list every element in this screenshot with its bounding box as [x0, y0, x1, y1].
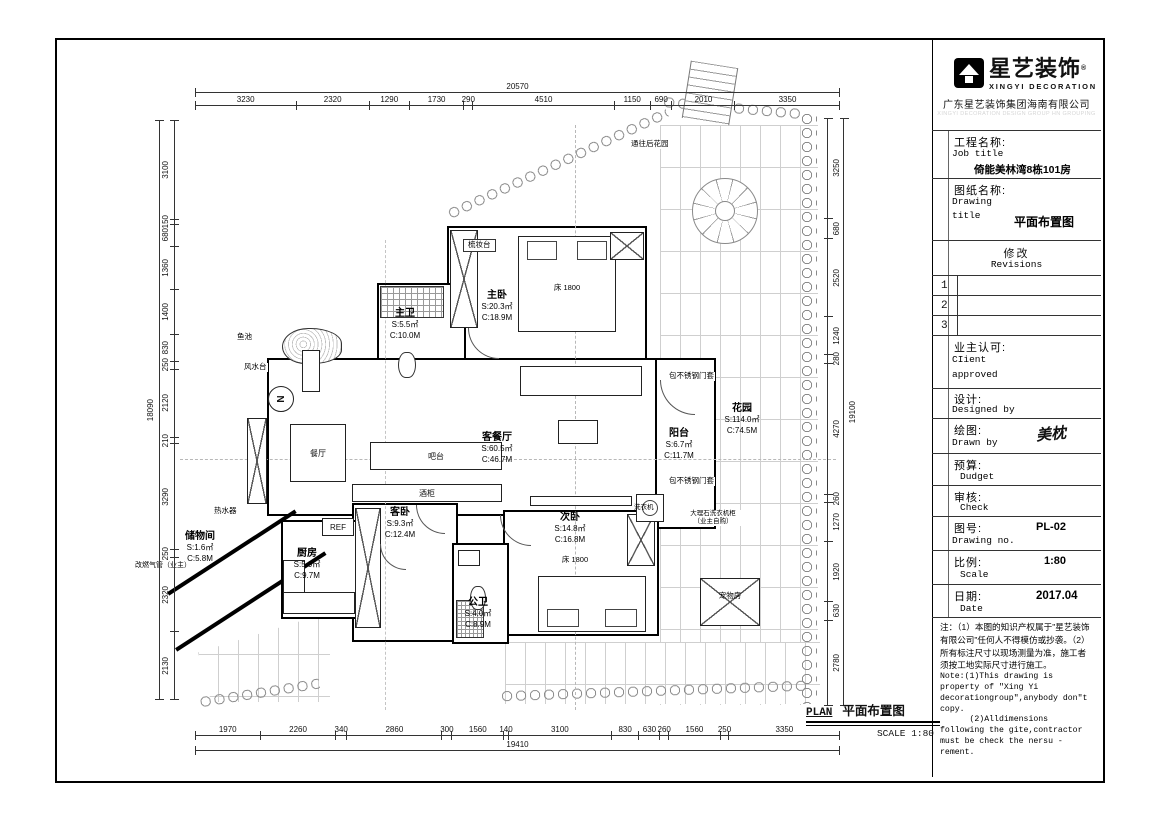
marble-cabinet-line2: （业主自购） — [694, 518, 733, 525]
fish-pond-label: 鱼池 — [236, 333, 253, 342]
dim-segment: 1270 — [828, 503, 841, 542]
plan-footer: PLAN 平面布置图 SCALE 1:80 — [806, 700, 940, 739]
revision-row: 3 — [932, 315, 1101, 335]
bed-master-label: 床 1800 — [520, 284, 614, 293]
client-label-en1: CIient — [952, 354, 986, 365]
job-label-en: Job title — [952, 148, 1003, 159]
date-label-en: Date — [960, 603, 983, 614]
back-garden-label: 通往后花园 — [630, 140, 670, 149]
tv-console — [530, 496, 632, 506]
notes-text: 注：（1）本图的知识产权属于"星艺装饰有限公司"任何人不得模仿或抄袭。（2）所有… — [940, 621, 1092, 759]
check-label-en: Check — [960, 502, 989, 513]
marble-cabinet-line1: 大理石洗衣机柜 — [690, 510, 736, 517]
dim-segment: 2120 — [161, 369, 174, 437]
dim-segment: 690 — [650, 92, 672, 105]
notes-cn: 注：（1）本图的知识产权属于"星艺装饰有限公司"任何人不得模仿或抄袭。（2）所有… — [940, 622, 1090, 670]
dim-segment: 2130 — [161, 632, 174, 700]
north-letter: N — [276, 395, 287, 402]
designed-label-en: Designed by — [952, 404, 1015, 415]
dim-right-overall: 19100 — [843, 118, 857, 706]
ornamental-plant-icon — [692, 178, 758, 244]
dim-segment: 3250 — [828, 118, 841, 218]
revision-row: 2 — [932, 295, 1101, 315]
kitchen-counter-2 — [283, 592, 355, 614]
dim-segment: 630 — [828, 601, 841, 620]
dim-segment: 300 — [442, 722, 452, 735]
bed-second-label: 床 1800 — [528, 556, 622, 565]
scale-value: 1:80 — [1044, 555, 1066, 567]
dim-segment: 4270 — [828, 363, 841, 494]
label-living-dining: 客餐厅 S:60.5㎡ C:46.7M — [452, 432, 542, 465]
dim-segment: 1970 — [195, 722, 260, 735]
drawn-label-cn: 绘图: — [954, 422, 982, 438]
revisions-table: 1 2 3 — [932, 275, 1101, 335]
dim-value: 18090 — [146, 399, 155, 421]
tb-drawing-title-section: 图纸名称: Drawing title 平面布置图 — [932, 178, 1101, 240]
bar-label: 吧台 — [428, 451, 444, 462]
dim-segment: 1240 — [828, 317, 841, 355]
client-label-en2: approved — [952, 369, 998, 380]
hall-cabinet — [247, 418, 267, 504]
pet-house — [700, 578, 760, 626]
toilet-master-bath — [398, 352, 416, 378]
wine-cabinet: 酒柜 — [352, 484, 502, 502]
tb-drawing-no-section: 图号: PL-02 Drawing no. — [932, 516, 1101, 550]
company-watermark: XINGYI DECORATION DESIGN GROUP HN GROUPI… — [932, 111, 1101, 117]
tb-budget-section: 预算: Dudget — [932, 453, 1101, 485]
wine-label: 酒柜 — [419, 488, 435, 499]
dim-segment: 3290 — [161, 444, 174, 549]
label-guest-bedroom: 客卧 S:9.3㎡ C:12.4M — [355, 507, 445, 540]
dim-segment: 3230 — [195, 92, 296, 105]
xingyi-house-logo-icon — [954, 58, 984, 88]
tb-date-section: 日期: 2017.04 Date — [932, 584, 1101, 617]
tb-job-section: 工程名称: Job title 倚能美林湾8栋101房 — [932, 130, 1101, 178]
ref-label: REF — [330, 523, 346, 532]
revision-cell — [958, 316, 1101, 335]
door-frame-label-bottom: 包不锈钢门套 — [668, 477, 715, 486]
dim-left-overall: 18090 — [146, 120, 160, 700]
drawing-title-label-en1: Drawing — [952, 196, 992, 207]
tb-logo-section: 星艺装饰® XINGYI DECORATION 广东星艺装饰集团海南有限公司 X… — [932, 38, 1101, 130]
sink-public-bath — [458, 550, 480, 566]
dim-top-segments: 32302320129017302904510115069020103350 — [195, 92, 840, 106]
revision-number: 3 — [932, 316, 958, 335]
label-public-bath: 公卫 S:4.0㎡ C:8.9M — [433, 597, 523, 630]
dim-segment: 1360 — [161, 246, 174, 290]
plan-title: 平面布置图 — [842, 700, 905, 719]
cabinet-master-corner — [610, 232, 644, 260]
dim-segment: 1290 — [369, 92, 409, 105]
north-arrow: N — [268, 386, 294, 412]
date-value: 2017.04 — [1036, 590, 1078, 602]
coffee-table — [558, 420, 598, 444]
dim-top-overall: 20570 — [195, 79, 840, 93]
dim-segment: 1560 — [669, 722, 721, 735]
plan-keyword: PLAN — [806, 707, 832, 719]
notes-en-1: Note:(1)This drawing is property of "Xin… — [940, 672, 1092, 715]
pet-house-label: 宠物房 — [702, 592, 758, 601]
brand-name-cn: 星艺装饰® — [989, 58, 1097, 80]
company-name: 广东星艺装饰集团海南有限公司 — [932, 96, 1101, 111]
dim-value: 19100 — [848, 401, 857, 423]
date-label-cn: 日期: — [954, 588, 982, 604]
refrigerator: REF — [322, 518, 354, 536]
dim-segment: 1560 — [452, 722, 504, 735]
dim-segment: 830 — [611, 722, 639, 735]
label-master-bedroom: 主卧 S:20.3㎡ C:18.9M — [452, 290, 542, 323]
door-frame-label-top: 包不锈钢门套 — [668, 372, 715, 381]
dim-segment: 2780 — [828, 620, 841, 706]
tb-check-section: 审核: Check — [932, 485, 1101, 516]
drawing-no-value: PL-02 — [1036, 521, 1066, 533]
dim-segment: 680 — [828, 218, 841, 239]
dim-segment: 2260 — [260, 722, 335, 735]
tb-scale-section: 比例: 1:80 Scale — [932, 550, 1101, 584]
dim-segment: 2320 — [161, 557, 174, 631]
tb-designed-section: 设计: Designed by — [932, 388, 1101, 418]
dim-value: 19410 — [506, 740, 528, 749]
sofa — [520, 366, 642, 396]
dim-segment: 2010 — [672, 92, 735, 105]
water-heater-label: 热水器 — [213, 507, 238, 516]
title-block: 星艺装饰® XINGYI DECORATION 广东星艺装饰集团海南有限公司 X… — [932, 38, 1101, 779]
dim-segment: 1150 — [614, 92, 650, 105]
dim-bottom-segments: 1970226034028603001560140310083063026015… — [195, 722, 840, 736]
dresser-label: 梳妆台 — [463, 239, 496, 252]
tb-revisions-section: 修改 Revisions 1 2 3 — [932, 240, 1101, 335]
dim-segment: 1920 — [828, 542, 841, 601]
revision-number: 2 — [932, 296, 958, 315]
drawn-label-en: Drawn by — [952, 437, 998, 448]
dim-segment: 4510 — [473, 92, 614, 105]
scale-label-en: Scale — [960, 569, 989, 580]
notes-en-2: (2)Alldimensions following the gite,cont… — [940, 715, 1092, 758]
fengshui-table — [302, 350, 320, 392]
dim-segment: 3100 — [508, 722, 611, 735]
dim-segment: 1400 — [161, 290, 174, 335]
dno-label-en: Drawing no. — [952, 535, 1015, 546]
budget-label-en: Dudget — [960, 471, 994, 482]
label-second-bedroom: 次卧 S:14.8㎡ C:16.8M — [525, 512, 615, 545]
dim-segment: 2520 — [828, 239, 841, 317]
label-garden: 花园 S:114.0㎡ C:74.5M — [697, 403, 787, 436]
tb-client-section: 业主认可: CIient approved — [932, 335, 1101, 388]
drawing-title-label-en2: title — [952, 210, 981, 221]
client-label-cn: 业主认可: — [954, 339, 1006, 355]
dim-bottom-overall: 19410 — [195, 737, 840, 751]
dim-segment: 680 — [161, 224, 174, 246]
registered-mark: ® — [1081, 65, 1087, 72]
dim-segment: 340 — [336, 722, 347, 735]
fengshui-label: 风水台 — [243, 363, 268, 372]
dno-label-cn: 图号: — [954, 520, 982, 536]
drawing-sheet-page: 餐厅 吧台 酒柜 REF N 主卧 S:20.3㎡ C:18.9M 主卫 S:5… — [0, 0, 1159, 819]
plan-scale: SCALE 1:80 — [806, 725, 940, 739]
tb-notes-section: 注：（1）本图的知识产权属于"星艺装饰有限公司"任何人不得模仿或抄袭。（2）所有… — [932, 617, 1101, 779]
revision-cell — [958, 296, 1101, 315]
dim-segment: 3350 — [735, 92, 840, 105]
dim-segment: 3100 — [161, 120, 174, 219]
dim-segment: 2860 — [347, 722, 442, 735]
scale-label-cn: 比例: — [954, 554, 982, 570]
label-master-bath: 主卫 S:5.5㎡ C:10.0M — [360, 308, 450, 341]
dim-segment: 2320 — [296, 92, 369, 105]
label-kitchen: 厨房 S:5.9㎡ C:9.7M — [262, 548, 352, 581]
dim-left-segments: 3100150680136014008302502120210329025023… — [161, 120, 175, 700]
revisions-label-en: Revisions — [932, 259, 1101, 270]
hedge-strip-right — [800, 112, 817, 704]
drawn-signature: 美枕 — [1035, 421, 1067, 445]
dining-table: 餐厅 — [290, 424, 346, 482]
dim-right-segments: 3250680252012402804270260127019206302780 — [827, 118, 841, 706]
dim-segment: 1730 — [409, 92, 463, 105]
revision-row: 1 — [932, 275, 1101, 295]
job-title-value: 倚能美林湾8栋101房 — [974, 162, 1071, 177]
dim-value: 20570 — [506, 82, 528, 91]
dining-label: 餐厅 — [310, 448, 326, 459]
tb-drawn-section: 绘图: Drawn by 美枕 — [932, 418, 1101, 453]
drawing-title-value: 平面布置图 — [1014, 213, 1074, 230]
marble-cabinet-label: 大理石洗衣机柜 （业主自购） — [676, 510, 750, 526]
revision-cell — [958, 276, 1101, 295]
revision-number: 1 — [932, 276, 958, 295]
bed-second — [538, 576, 646, 632]
washer-label: 洗衣机 — [633, 504, 655, 513]
brand-name-en: XINGYI DECORATION — [989, 82, 1097, 91]
